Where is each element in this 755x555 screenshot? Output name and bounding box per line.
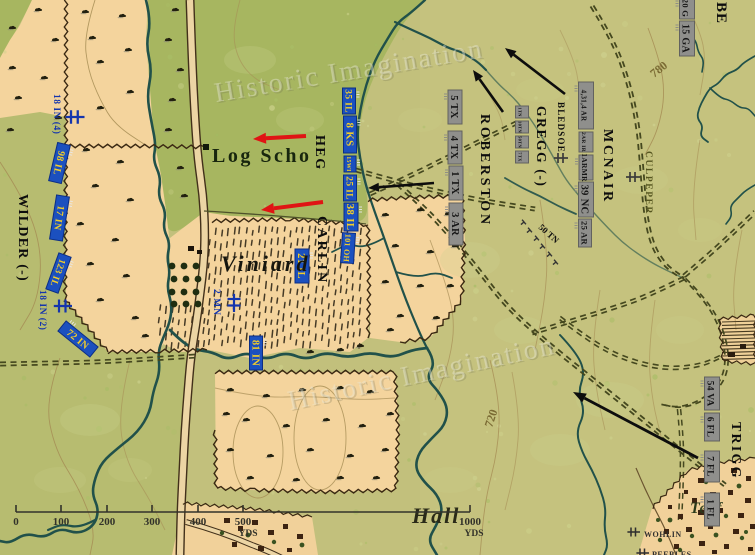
svg-text:YDS: YDS xyxy=(464,529,483,539)
svg-text:39 NC: 39 NC xyxy=(579,185,590,215)
svg-text:Viniard: Viniard xyxy=(221,251,310,276)
svg-text:TRIGG: TRIGG xyxy=(728,422,743,480)
svg-text:6 FL: 6 FL xyxy=(705,417,715,437)
svg-text:18 IN (4): 18 IN (4) xyxy=(51,94,62,134)
svg-text:8 KS: 8 KS xyxy=(344,122,356,146)
svg-text:Hall: Hall xyxy=(411,503,460,528)
svg-text:0: 0 xyxy=(13,516,19,528)
svg-text:2 MN: 2 MN xyxy=(211,289,221,316)
svg-text:500: 500 xyxy=(235,516,252,528)
svg-text:15 GA: 15 GA xyxy=(680,24,691,53)
svg-text:25 AR: 25 AR xyxy=(580,221,590,245)
svg-text:7TX: 7TX xyxy=(518,152,523,162)
svg-text:PEEBLES: PEEBLES xyxy=(652,550,692,555)
svg-text:4,31,4 AR: 4,31,4 AR xyxy=(580,90,588,122)
svg-text:5 TX: 5 TX xyxy=(448,95,459,119)
svg-text:WOHLIN: WOHLIN xyxy=(644,530,682,539)
svg-text:101 OH: 101 OH xyxy=(342,234,353,263)
svg-text:7 FL: 7 FL xyxy=(705,456,715,476)
svg-text:1 FL: 1 FL xyxy=(705,499,715,519)
svg-text:300: 300 xyxy=(144,516,161,528)
svg-text:4 TX: 4 TX xyxy=(448,136,459,160)
svg-text:200: 200 xyxy=(99,516,116,528)
svg-text:HEG: HEG xyxy=(312,135,327,171)
svg-text:YDS: YDS xyxy=(238,529,257,539)
svg-text:400: 400 xyxy=(190,516,207,528)
svg-text:Log Scho: Log Scho xyxy=(212,145,311,167)
svg-text:20 G: 20 G xyxy=(681,0,691,17)
svg-text:3 AR: 3 AR xyxy=(449,212,460,236)
svg-text:25 IL: 25 IL xyxy=(344,176,354,199)
svg-text:35 IL: 35 IL xyxy=(343,89,353,112)
svg-text:CULPEPER: CULPEPER xyxy=(643,151,653,215)
svg-text:CARLIN: CARLIN xyxy=(314,216,329,284)
svg-text:100: 100 xyxy=(53,516,70,528)
svg-text:81 IN: 81 IN xyxy=(250,340,261,366)
svg-text:18 IN (2): 18 IN (2) xyxy=(37,290,48,330)
svg-text:1ARMR: 1ARMR xyxy=(580,153,589,182)
svg-text:WILDER (-): WILDER (-) xyxy=(15,194,30,282)
svg-text:10TN: 10TN xyxy=(518,121,523,133)
svg-text:38 IL: 38 IL xyxy=(344,204,356,231)
svg-text:MCNAIR: MCNAIR xyxy=(600,129,615,204)
svg-text:50TN: 50TN xyxy=(518,136,523,148)
svg-text:1TN: 1TN xyxy=(518,107,523,117)
svg-text:15WI: 15WI xyxy=(345,156,351,172)
svg-text:ROBERSTON: ROBERSTON xyxy=(477,114,492,227)
svg-text:BE: BE xyxy=(713,2,729,24)
svg-text:BLEDSOE: BLEDSOE xyxy=(556,102,566,153)
svg-text:54 VA: 54 VA xyxy=(705,381,715,407)
svg-text:GREGG (-): GREGG (-) xyxy=(534,106,549,188)
svg-text:1 TX: 1 TX xyxy=(449,171,460,195)
svg-text:1000: 1000 xyxy=(459,516,482,528)
svg-text:2AR IR: 2AR IR xyxy=(580,132,586,153)
